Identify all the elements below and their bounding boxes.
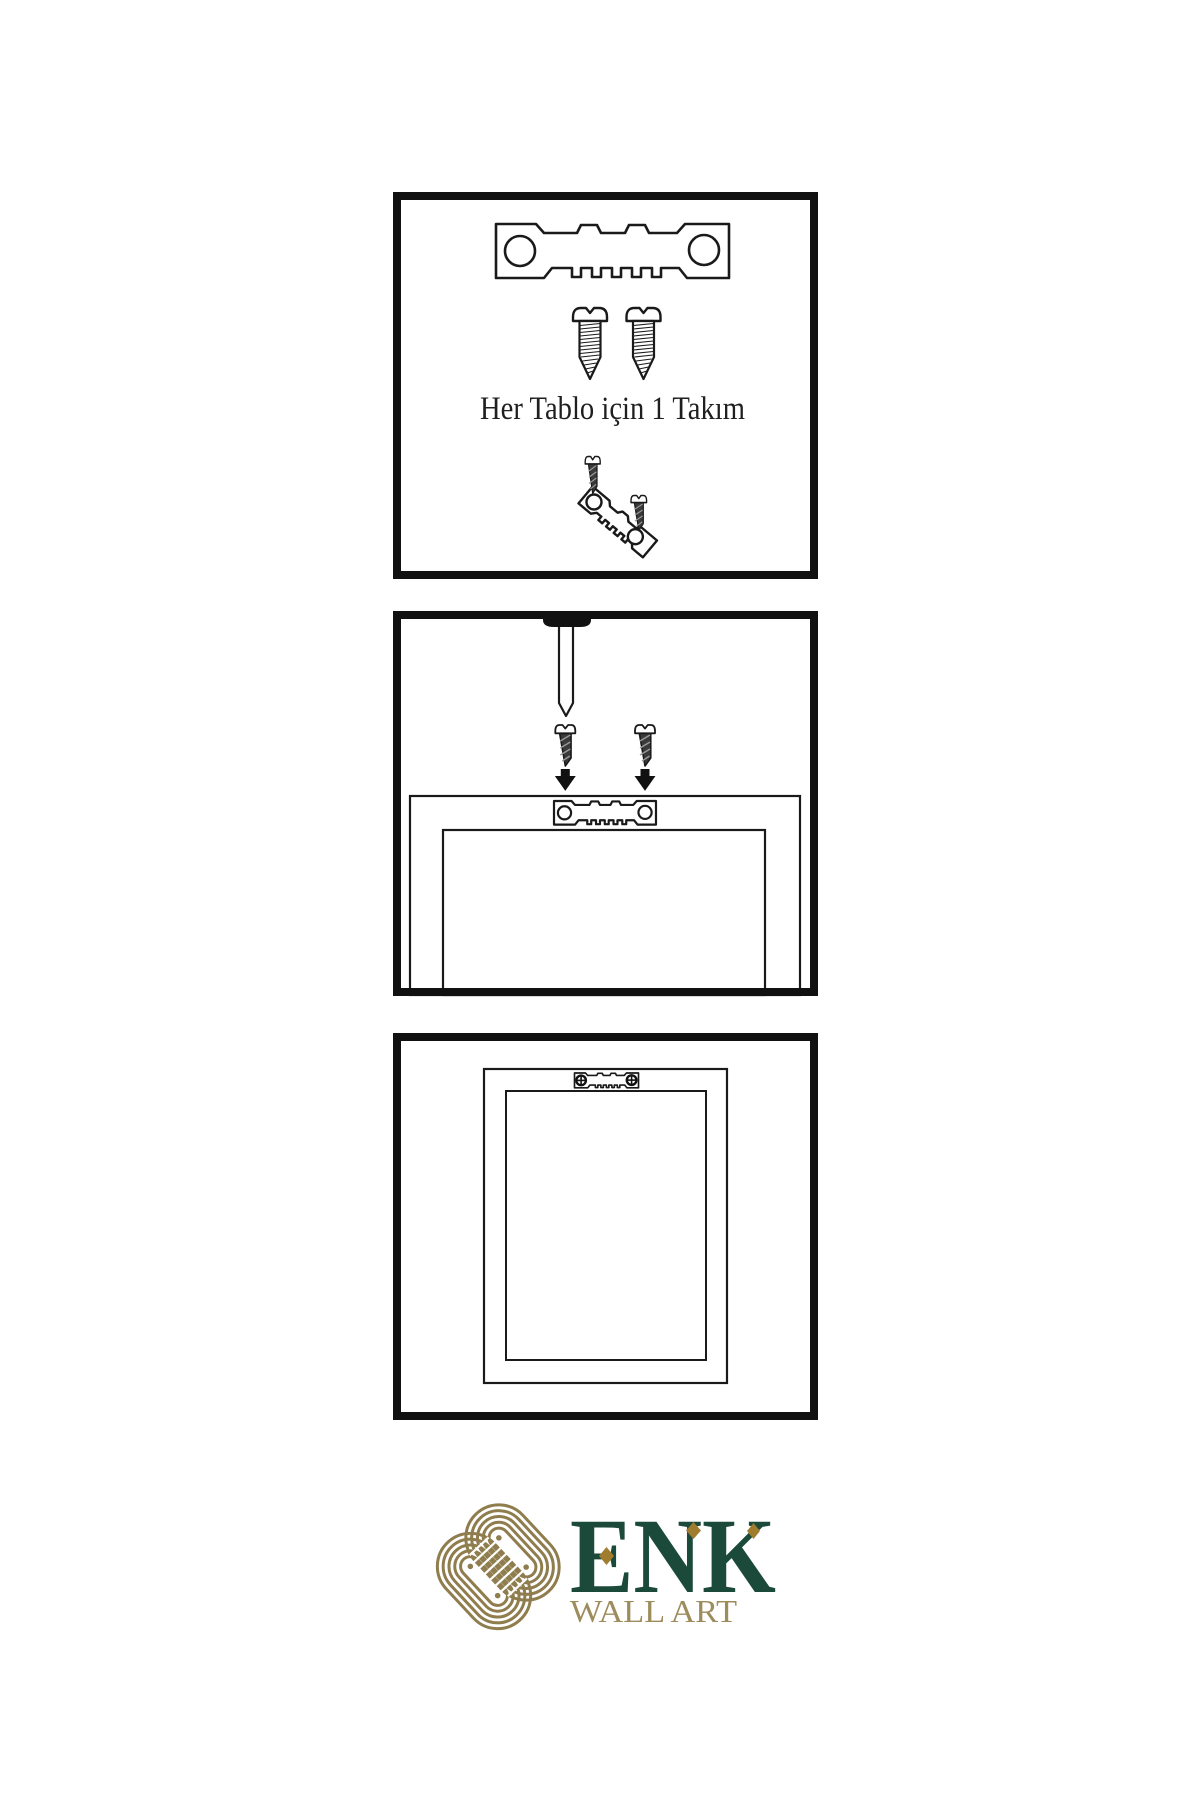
svg-text:WALL ART: WALL ART (570, 1593, 737, 1629)
svg-text:Her Tablo için 1 Takım: Her Tablo için 1 Takım (480, 391, 745, 427)
